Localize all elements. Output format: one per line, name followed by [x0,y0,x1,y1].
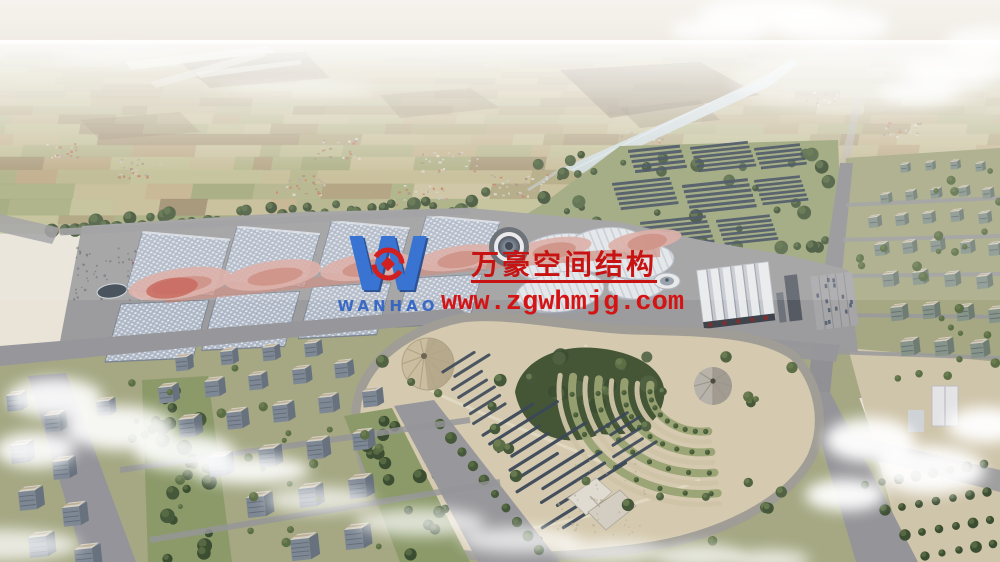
grey-cone-tent [694,367,732,405]
atmosphere-veil [0,0,1000,300]
aerial-rendering: W W WANHAO 万豪空间结构 www.zgwhmjg.com [0,0,1000,562]
rendering-scene [0,0,1000,562]
